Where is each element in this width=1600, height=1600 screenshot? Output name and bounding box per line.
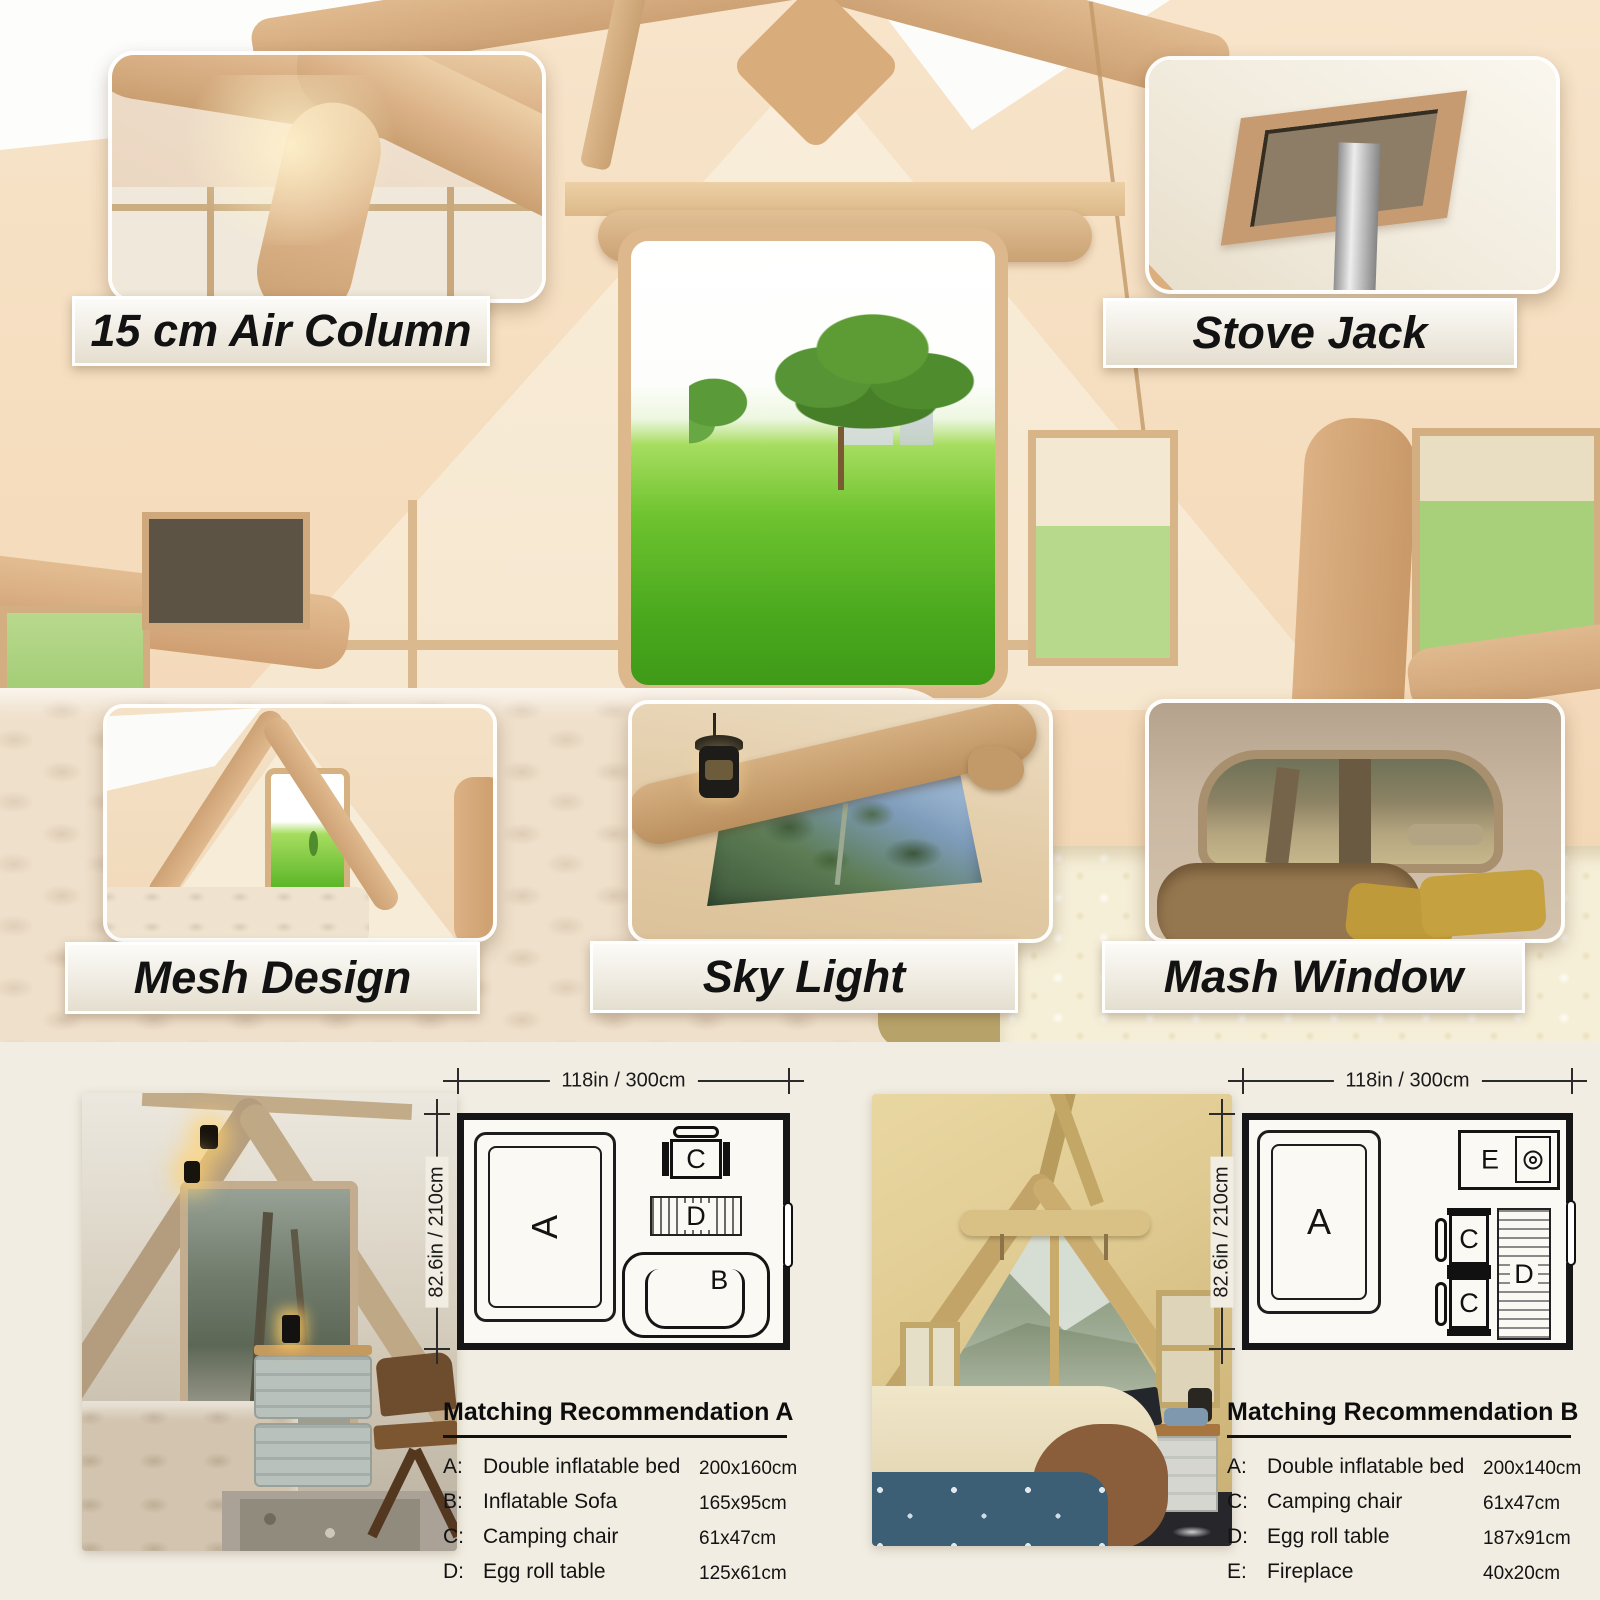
item-size: 40x20cm bbox=[1483, 1559, 1587, 1587]
dim-tick bbox=[1242, 1068, 1244, 1094]
camping-chair-plan: C bbox=[662, 1126, 732, 1182]
hanging-lantern bbox=[200, 1125, 218, 1149]
chair-seat: C bbox=[1449, 1277, 1489, 1329]
feature-label-air-column: 15 cm Air Column bbox=[72, 296, 490, 366]
item-key: D: bbox=[443, 1559, 483, 1587]
inset-photo-mesh-design bbox=[103, 704, 497, 942]
rug bbox=[240, 1499, 420, 1551]
lantern-icon bbox=[699, 746, 739, 798]
item-name: Camping chair bbox=[483, 1524, 699, 1552]
item-key: C: bbox=[443, 1524, 483, 1552]
letter-e: E bbox=[1481, 1145, 1499, 1176]
egg-roll-table-plan: D bbox=[1497, 1208, 1551, 1340]
bed-letter: A bbox=[1260, 1133, 1378, 1311]
floor-plan-section: 118in / 300cm 82.6in / 210cm A C bbox=[0, 1042, 1600, 1600]
inset-photo-mash-window bbox=[1145, 699, 1565, 943]
wood-top bbox=[254, 1345, 372, 1355]
inset-photo-stove-jack bbox=[1145, 56, 1560, 294]
window-mullion bbox=[1050, 1224, 1059, 1409]
mini-mattress bbox=[103, 887, 369, 942]
item-name: Egg roll table bbox=[483, 1559, 699, 1587]
dim-height-label: 82.6in / 210cm bbox=[426, 1156, 449, 1307]
chair-armrest bbox=[673, 1126, 719, 1138]
mini-air-column bbox=[454, 777, 497, 942]
tree-trunk bbox=[1339, 759, 1371, 864]
rolled-curtain bbox=[960, 1210, 1150, 1236]
item-key: C: bbox=[1227, 1489, 1267, 1517]
feature-label-text: Sky Light bbox=[703, 951, 906, 1003]
flue-circle-inner bbox=[1529, 1156, 1537, 1164]
item-size: 125x61cm bbox=[699, 1559, 803, 1587]
item-name: Inflatable Sofa bbox=[483, 1489, 699, 1517]
right-mesh-window bbox=[1412, 428, 1600, 660]
lantern-glass bbox=[705, 760, 733, 780]
item-size: 165x95cm bbox=[699, 1489, 803, 1517]
fireplace-plan: E bbox=[1458, 1130, 1560, 1190]
stone-bench bbox=[1408, 824, 1483, 845]
item-key: E: bbox=[1227, 1559, 1267, 1587]
photo-recommendation-a bbox=[82, 1093, 457, 1551]
fireplace-flue-box bbox=[1515, 1136, 1551, 1183]
camping-chair-plan: C bbox=[1435, 1272, 1493, 1336]
crate bbox=[254, 1355, 372, 1419]
item-name: Double inflatable bed bbox=[1267, 1454, 1483, 1482]
bed-a: A bbox=[474, 1132, 616, 1322]
item-size: 200x160cm bbox=[699, 1454, 803, 1482]
bed-b: A bbox=[1257, 1130, 1381, 1314]
egg-roll-table-plan: D bbox=[650, 1196, 742, 1236]
dim-height-label: 82.6in / 210cm bbox=[1211, 1156, 1234, 1307]
feature-label-stove-jack: Stove Jack bbox=[1103, 298, 1517, 368]
photo-recommendation-b bbox=[872, 1094, 1232, 1546]
gable-trim-vertical bbox=[408, 500, 417, 700]
dim-tick bbox=[1571, 1068, 1573, 1094]
feature-label-mesh-design: Mesh Design bbox=[65, 942, 480, 1014]
chimney-pipe bbox=[1334, 142, 1381, 294]
light-flare bbox=[155, 75, 456, 246]
tent-product-infographic: 15 cm Air Column Stove Jack Me bbox=[0, 0, 1600, 1600]
dim-tick bbox=[1209, 1348, 1235, 1350]
recommendation-b: Matching Recommendation B A: Double infl… bbox=[1227, 1398, 1587, 1587]
chair-side-bar bbox=[662, 1142, 669, 1176]
recommendation-b-title: Matching Recommendation B bbox=[1227, 1398, 1571, 1438]
door-marker bbox=[783, 1202, 793, 1268]
inflatable-sofa-plan: B bbox=[622, 1252, 770, 1338]
recommendation-a-title: Matching Recommendation A bbox=[443, 1398, 787, 1438]
inset-photo-sky-light bbox=[628, 700, 1053, 943]
dim-width-label: 118in / 300cm bbox=[549, 1070, 697, 1093]
feature-label-text: Mesh Design bbox=[134, 952, 412, 1004]
recommendation-b-list: A: Double inflatable bed 200x140cm C: Ca… bbox=[1227, 1454, 1587, 1587]
chair-side-bar bbox=[723, 1142, 730, 1176]
dim-height-plan-a: 82.6in / 210cm bbox=[424, 1113, 450, 1350]
letter-a: A bbox=[1307, 1201, 1331, 1243]
chair-seat: C bbox=[670, 1139, 722, 1179]
item-size: 61x47cm bbox=[699, 1524, 803, 1552]
storage-boxes bbox=[254, 1345, 372, 1489]
recommendation-a: Matching Recommendation A A: Double infl… bbox=[443, 1398, 803, 1587]
gable-mesh-window bbox=[1028, 430, 1178, 666]
item-size: 187x91cm bbox=[1483, 1524, 1587, 1552]
floor-plan-b: A E C bbox=[1242, 1113, 1573, 1350]
table-lantern bbox=[282, 1315, 300, 1343]
item-size: 200x140cm bbox=[1483, 1454, 1587, 1482]
feature-label-text: 15 cm Air Column bbox=[91, 305, 472, 357]
item-name: Camping chair bbox=[1267, 1489, 1483, 1517]
item-name: Fireplace bbox=[1267, 1559, 1483, 1587]
dim-height-plan-b: 82.6in / 210cm bbox=[1209, 1113, 1235, 1350]
feature-label-sky-light: Sky Light bbox=[590, 941, 1018, 1013]
chair-side-bar bbox=[1447, 1265, 1491, 1272]
floor-plan-a: A C D B bbox=[457, 1113, 790, 1350]
item-key: B: bbox=[443, 1489, 483, 1517]
mini-tree bbox=[309, 831, 318, 856]
pillow bbox=[1419, 869, 1547, 939]
dim-tick bbox=[424, 1113, 450, 1115]
letter-b: B bbox=[710, 1265, 728, 1296]
sofa-inner-line bbox=[645, 1269, 745, 1329]
feature-label-text: Stove Jack bbox=[1192, 307, 1427, 359]
chair-armrest bbox=[1435, 1218, 1447, 1262]
flap-knot bbox=[968, 746, 1024, 790]
dim-tick bbox=[424, 1348, 450, 1350]
letter-a: A bbox=[524, 1215, 566, 1239]
tree-trunk bbox=[838, 427, 844, 489]
folded-cloth bbox=[1164, 1408, 1208, 1426]
blue-blanket bbox=[872, 1472, 1108, 1546]
dim-tick bbox=[788, 1068, 790, 1094]
letter-d: D bbox=[1510, 1261, 1538, 1288]
item-key: D: bbox=[1227, 1524, 1267, 1552]
chair-seat: C bbox=[1449, 1213, 1489, 1265]
chair-armrest bbox=[1435, 1282, 1447, 1326]
item-key: A: bbox=[443, 1454, 483, 1482]
hanging-lantern bbox=[184, 1161, 200, 1183]
dim-width-plan-b: 118in / 300cm bbox=[1242, 1068, 1573, 1094]
letter-c: C bbox=[686, 1144, 706, 1175]
recommendation-a-list: A: Double inflatable bed 200x160cm B: In… bbox=[443, 1454, 803, 1587]
inset-photo-air-column bbox=[108, 51, 546, 303]
bed-letter: A bbox=[477, 1135, 613, 1319]
camping-chair-plan: C bbox=[1435, 1208, 1493, 1272]
item-key: A: bbox=[1227, 1454, 1267, 1482]
dim-tick bbox=[457, 1068, 459, 1094]
curtain-tie bbox=[1104, 1234, 1108, 1260]
door-opening-view bbox=[618, 228, 1008, 698]
dim-tick bbox=[1209, 1113, 1235, 1115]
dim-width-label: 118in / 300cm bbox=[1333, 1070, 1481, 1093]
crate bbox=[254, 1423, 372, 1487]
chair-side-bar bbox=[1447, 1329, 1491, 1336]
feature-label-text: Mash Window bbox=[1164, 951, 1464, 1003]
dim-width-plan-a: 118in / 300cm bbox=[457, 1068, 790, 1094]
letter-c: C bbox=[1459, 1224, 1479, 1255]
tent-interior-hero-photo: 15 cm Air Column Stove Jack Me bbox=[0, 0, 1600, 1042]
letter-d: D bbox=[682, 1203, 710, 1230]
door-marker bbox=[1566, 1200, 1576, 1266]
item-name: Double inflatable bed bbox=[483, 1454, 699, 1482]
tree-trunk bbox=[1265, 767, 1300, 865]
item-name: Egg roll table bbox=[1267, 1524, 1483, 1552]
item-size: 61x47cm bbox=[1483, 1489, 1587, 1517]
curtain-tie bbox=[1000, 1234, 1004, 1260]
arched-mesh-window bbox=[1198, 750, 1503, 873]
feature-label-mash-window: Mash Window bbox=[1102, 941, 1525, 1013]
letter-c: C bbox=[1459, 1288, 1479, 1319]
